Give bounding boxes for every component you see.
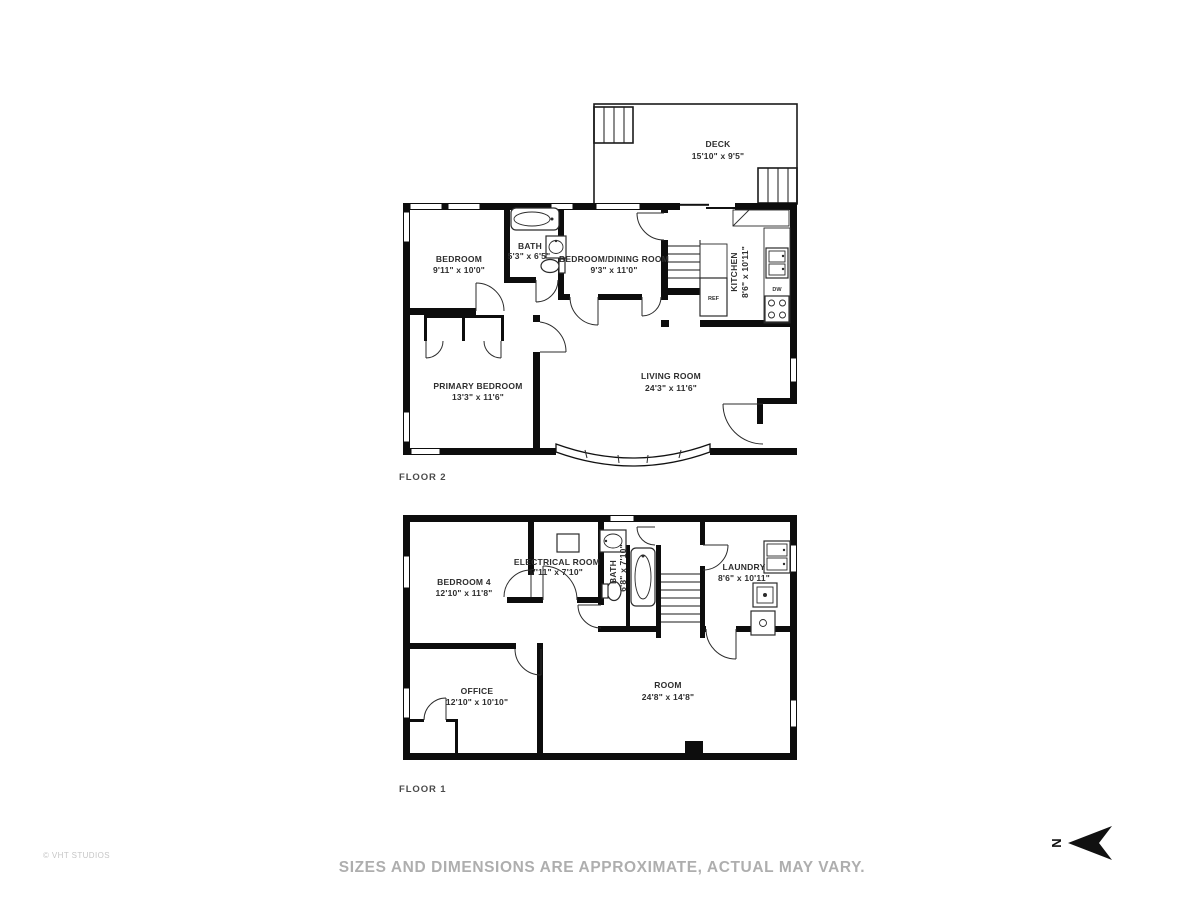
deck-stairs-lower xyxy=(758,168,797,203)
bath2-label: BATH xyxy=(518,241,542,251)
electrical-room-dims: 7'11" x 7'10" xyxy=(531,567,583,577)
kitchen-dims: 8'6" x 10'11" xyxy=(740,246,750,298)
north-arrow: N xyxy=(1049,826,1112,860)
living-room-dims: 24'3" x 11'6" xyxy=(645,383,697,393)
laundry-sink-icon xyxy=(764,541,790,573)
bay-window xyxy=(556,444,710,466)
stairs-floor2 xyxy=(668,240,700,288)
laundry-dims: 8'6" x 10'11" xyxy=(718,573,770,583)
bedroom4-dims: 12'10" x 11'8" xyxy=(436,588,493,598)
dryer-icon xyxy=(751,611,775,635)
refrigerator-icon xyxy=(700,244,727,316)
dishwasher-label: DW xyxy=(772,287,782,293)
electrical-room-label: ELECTRICAL ROOM xyxy=(514,557,600,567)
kitchen-label: KITCHEN xyxy=(729,252,739,292)
floor1-plan: BEDROOM 4 12'10" x 11'8" ELECTRICAL ROOM… xyxy=(403,515,797,760)
bath1-label: BATH xyxy=(608,560,618,584)
bath2-dims: 5'3" x 6'5" xyxy=(508,251,551,261)
deck-dims: 15'10" x 9'5" xyxy=(692,151,745,161)
bedroom4-label: BEDROOM 4 xyxy=(437,577,491,587)
north-letter: N xyxy=(1049,838,1064,847)
bath1-dims: 6'8" x 7'10" xyxy=(618,544,628,592)
bedroom-label: BEDROOM xyxy=(436,254,482,264)
refrigerator-label: REF xyxy=(708,296,720,302)
floor-plan-drawing: DECK 15'10" x 9'5" xyxy=(0,0,1200,900)
floor2-label: FLOOR 2 xyxy=(399,472,446,483)
room-label: ROOM xyxy=(654,680,681,690)
floor1-label: FLOOR 1 xyxy=(399,784,446,795)
north-arrow-icon xyxy=(1068,826,1112,860)
bathtub-icon xyxy=(511,208,559,230)
bath1-tub-icon xyxy=(631,548,655,606)
stove-icon xyxy=(765,296,789,322)
living-room-label: LIVING ROOM xyxy=(641,371,701,381)
primary-bedroom-label: PRIMARY BEDROOM xyxy=(433,381,522,391)
primary-bedroom-dims: 13'3" x 11'6" xyxy=(452,392,504,402)
disclaimer-text: SIZES AND DIMENSIONS ARE APPROXIMATE, AC… xyxy=(339,859,865,876)
bedroom-dining-dims: 9'3" x 11'0" xyxy=(590,265,637,275)
bedroom-dims: 9'11" x 10'0" xyxy=(433,265,485,275)
floor-plan-page: DECK 15'10" x 9'5" xyxy=(0,0,1200,900)
chimney xyxy=(685,741,703,755)
washer-icon xyxy=(753,583,777,607)
room-dims: 24'8" x 14'8" xyxy=(642,692,695,702)
laundry-label: LAUNDRY xyxy=(723,562,766,572)
stairs-floor1 xyxy=(661,574,700,622)
electrical-panel-icon xyxy=(557,534,579,552)
office-dims: 12'10" x 10'10" xyxy=(446,697,508,707)
closets xyxy=(424,315,504,358)
bedroom-dining-label: BEDROOM/DINING ROOM xyxy=(559,254,669,264)
deck-label: DECK xyxy=(705,139,731,149)
floor2-plan: DW REF BEDROOM 9'11" x 10'0" BATH 5'3" x… xyxy=(403,203,797,466)
kitchen-sink-icon xyxy=(766,248,788,278)
copyright-text: © VHT STUDIOS xyxy=(43,851,110,860)
slider-door xyxy=(680,203,735,210)
deck-stairs-upper xyxy=(594,107,633,143)
deck: DECK 15'10" x 9'5" xyxy=(594,104,797,204)
office-label: OFFICE xyxy=(461,686,494,696)
